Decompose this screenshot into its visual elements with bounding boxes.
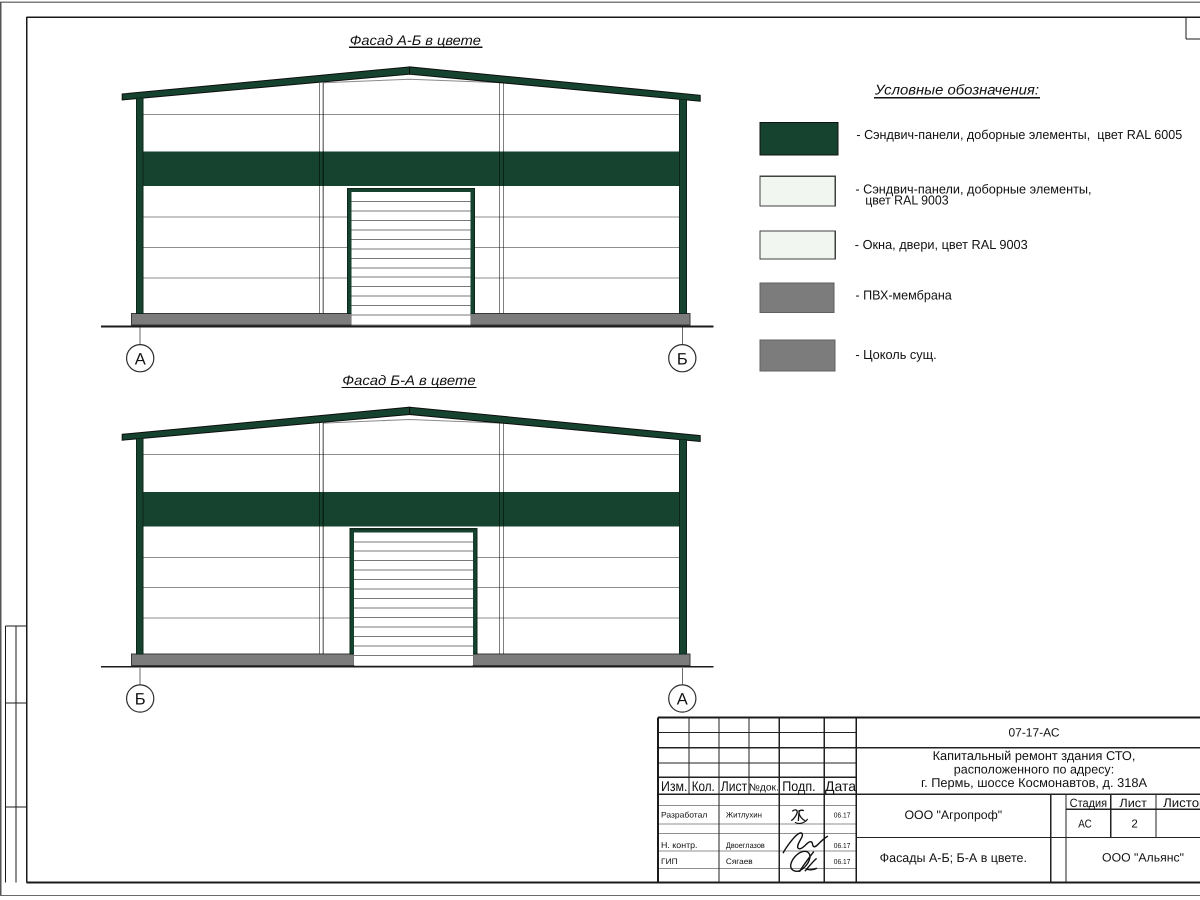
svg-text:Подп.: Подп. <box>782 778 815 794</box>
svg-text:Условные обозначения:: Условные обозначения: <box>874 83 1039 99</box>
svg-text:Фасад Б-А в цвете: Фасад Б-А в цвете <box>342 373 476 388</box>
svg-text:№док.: №док. <box>749 782 779 793</box>
svg-text:Н. контр.: Н. контр. <box>661 840 698 850</box>
svg-text:Листов: Листов <box>1163 796 1200 810</box>
svg-text:- Окна, двери, цвет RAL 9003: - Окна, двери, цвет RAL 9003 <box>855 237 1028 252</box>
svg-text:Лист: Лист <box>1119 796 1147 810</box>
svg-text:цвет RAL 9003: цвет RAL 9003 <box>865 192 948 207</box>
svg-text:2: 2 <box>1131 819 1137 831</box>
svg-text:- Цоколь сущ.: - Цоколь сущ. <box>855 347 936 362</box>
svg-text:Стадия: Стадия <box>1070 796 1108 810</box>
svg-text:Лист: Лист <box>721 778 748 794</box>
svg-text:- Сэндвич-панели, доборные эле: - Сэндвич-панели, доборные элементы, цве… <box>856 127 1182 142</box>
svg-text:07-17-АС: 07-17-АС <box>1009 726 1060 740</box>
svg-text:Разработал: Разработал <box>661 810 708 819</box>
svg-text:06.17: 06.17 <box>834 841 851 850</box>
svg-text:- ПВХ-мембрана: - ПВХ-мембрана <box>855 287 952 302</box>
svg-text:06.17: 06.17 <box>834 857 851 866</box>
svg-text:Дата: Дата <box>825 778 856 794</box>
svg-text:Б: Б <box>677 350 688 368</box>
svg-text:А: А <box>677 691 688 709</box>
svg-text:Фасады А-Б; Б-А в цвете.: Фасады А-Б; Б-А в цвете. <box>880 851 1027 865</box>
svg-text:Капитальный ремонт здания СТО,: Капитальный ремонт здания СТО, <box>933 749 1136 763</box>
svg-text:06.17: 06.17 <box>834 810 851 819</box>
svg-text:Житлухин: Житлухин <box>726 810 762 819</box>
svg-text:Б: Б <box>135 691 146 709</box>
svg-text:Сягаев: Сягаев <box>726 857 753 866</box>
svg-text:А: А <box>135 350 146 368</box>
svg-text:ООО "Агропроф": ООО "Агропроф" <box>904 808 1002 822</box>
svg-text:г. Пермь, шоссе Космонавтов, д: г. Пермь, шоссе Космонавтов, д. 318А <box>921 775 1147 790</box>
svg-text:Двоеглазов: Двоеглазов <box>726 841 765 850</box>
svg-text:ГИП: ГИП <box>661 857 678 866</box>
svg-text:ООО "Альянс": ООО "Альянс" <box>1102 851 1184 865</box>
svg-text:Изм.: Изм. <box>661 778 688 794</box>
svg-text:Кол.: Кол. <box>692 778 715 794</box>
svg-text:АС: АС <box>1078 819 1092 831</box>
svg-text:Фасад А-Б в цвете: Фасад А-Б в цвете <box>350 33 481 48</box>
